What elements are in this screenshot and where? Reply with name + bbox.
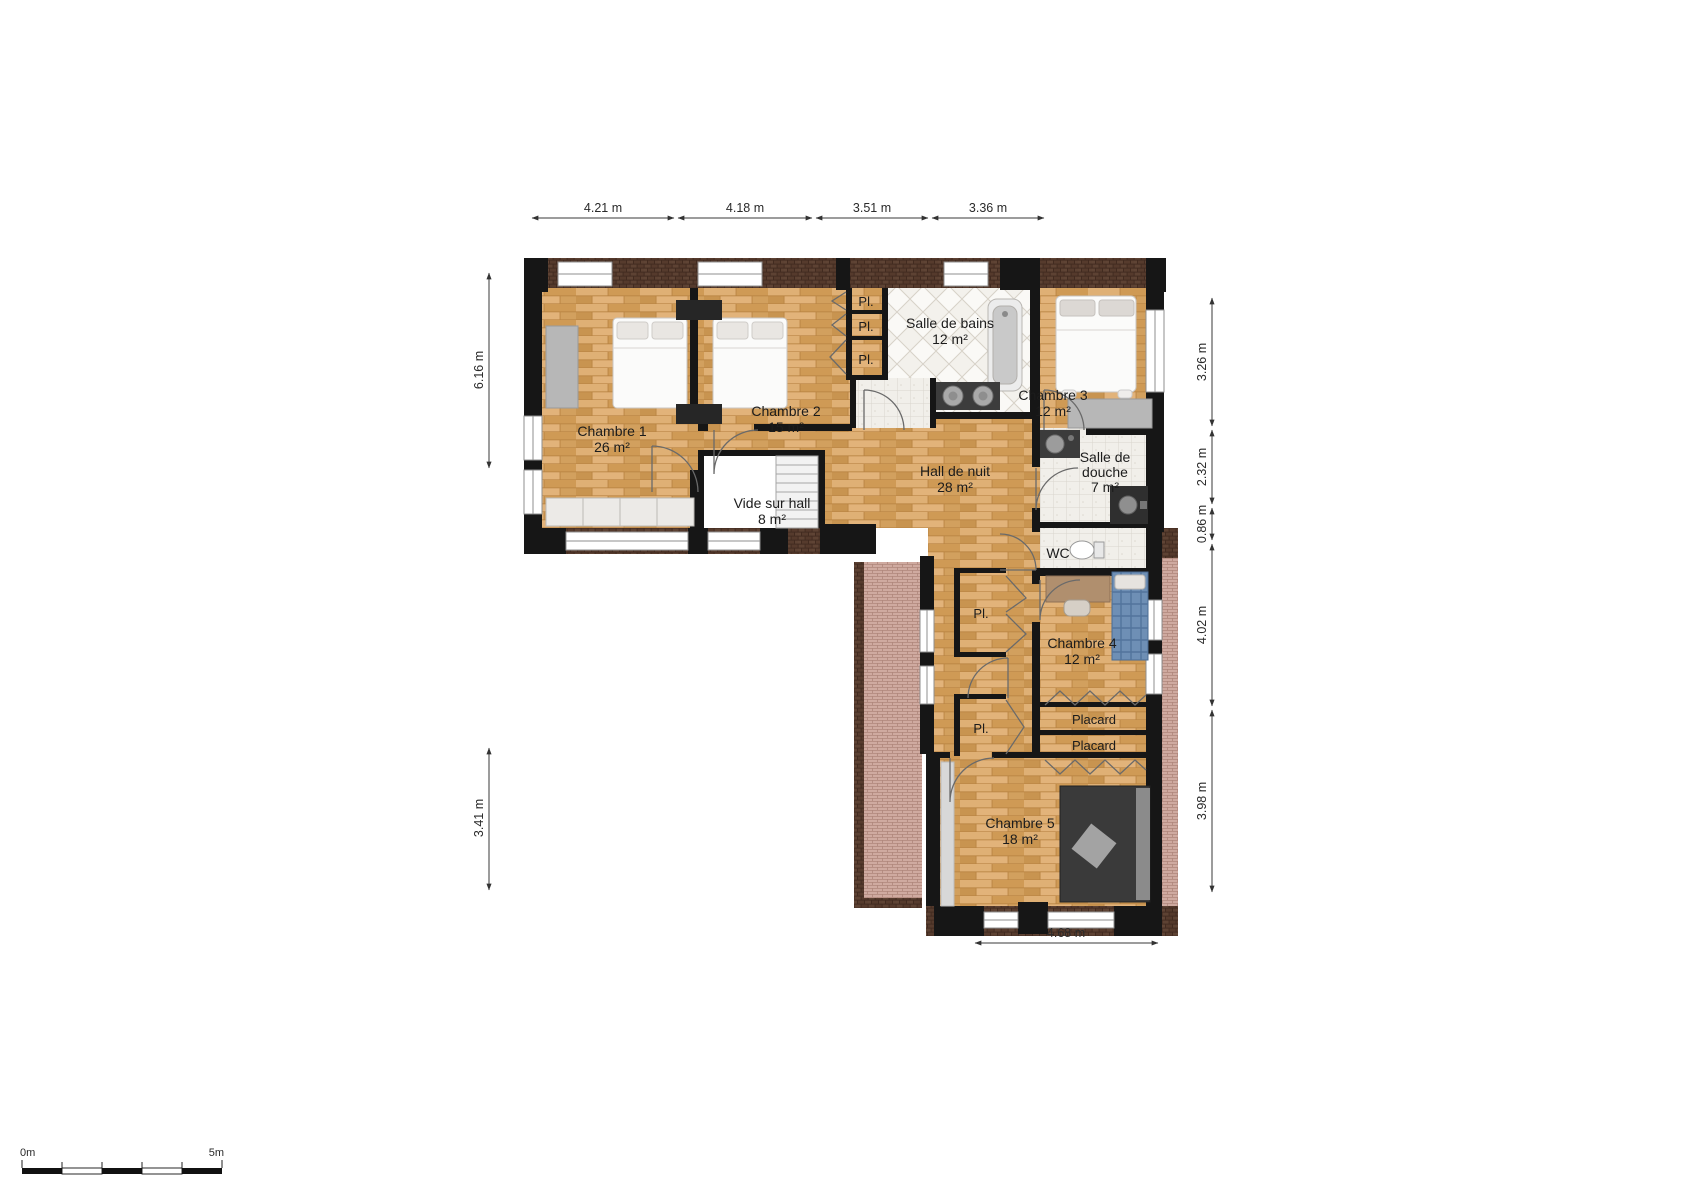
wall-placard-div bbox=[1036, 730, 1148, 735]
room-label-chambre5: Chambre 5 bbox=[985, 815, 1054, 831]
double-sink-icon bbox=[936, 382, 1000, 410]
toilet-icon bbox=[1070, 541, 1104, 559]
wall-ch2-hall-a bbox=[698, 424, 708, 431]
wall-seg bbox=[1018, 902, 1048, 934]
roof-hatch-left-bottom bbox=[854, 898, 922, 908]
wall-strip-icon bbox=[941, 762, 954, 906]
closet-label-pl: Pl. bbox=[858, 294, 873, 309]
wall-j1 bbox=[1032, 428, 1040, 435]
roof-hatch-right bbox=[1162, 528, 1178, 908]
dim-label-right-5: 3.98 m bbox=[1195, 782, 1209, 820]
wardrobe-icon bbox=[546, 326, 578, 408]
wall-placard-left bbox=[1032, 702, 1040, 756]
closet-label-placard: Placard bbox=[1072, 738, 1116, 753]
room-label-chambre1: Chambre 1 bbox=[577, 423, 646, 439]
dim-label-right-4: 4.02 m bbox=[1195, 606, 1209, 644]
wall-void-left bbox=[698, 450, 704, 528]
dim-label-left-1: 6.16 m bbox=[472, 351, 486, 389]
dim-label-right-2: 2.32 m bbox=[1195, 448, 1209, 486]
wall-pl-right bbox=[882, 288, 888, 380]
dim-label-bottom-1: 4.68 m bbox=[1047, 926, 1085, 940]
room-label-salle-de-bains: Salle de bains bbox=[906, 315, 994, 331]
wall-corr-b bbox=[1032, 622, 1040, 708]
wall-plw2-top bbox=[954, 694, 1006, 699]
west-wall-mid bbox=[524, 460, 542, 470]
floor-plan-page: Chambre 1 26 m² Chambre 2 15 m² Salle de… bbox=[0, 0, 1696, 1200]
wall-strip-left bbox=[850, 378, 856, 428]
dim-label-top-3: 3.51 m bbox=[853, 201, 891, 215]
wall-void-right bbox=[818, 450, 825, 528]
wall-corner-nw bbox=[524, 258, 548, 292]
room-label-salle-de-douche-1: Salle de bbox=[1080, 449, 1131, 465]
wall-seg bbox=[524, 528, 566, 554]
scale-seg bbox=[102, 1168, 142, 1174]
room-area-salle-de-douche: 7 m² bbox=[1091, 479, 1119, 495]
dim-label-right-3: 0.86 m bbox=[1195, 505, 1209, 543]
window bbox=[1146, 310, 1164, 392]
wall-pl-left bbox=[846, 288, 852, 380]
wall-seg bbox=[760, 528, 788, 554]
roof-hatch-right-cap bbox=[1162, 528, 1178, 558]
west-wall-upper bbox=[524, 288, 542, 416]
roof-hatch-left-edge bbox=[854, 562, 864, 908]
closet-label-placard: Placard bbox=[1072, 712, 1116, 727]
room-area-chambre2: 15 m² bbox=[768, 419, 804, 435]
room-label-hall-de-nuit: Hall de nuit bbox=[920, 463, 990, 479]
dim-label-right-1: 3.26 m bbox=[1195, 343, 1209, 381]
room-label-chambre4: Chambre 4 bbox=[1047, 635, 1116, 651]
closet-label-pl: Pl. bbox=[858, 352, 873, 367]
closet-label-pl: Pl. bbox=[858, 319, 873, 334]
sink-icon bbox=[1040, 430, 1080, 458]
dim-label-left-2: 3.41 m bbox=[472, 799, 486, 837]
wall-plw1-bottom bbox=[954, 652, 1006, 657]
east-wall-upper bbox=[1146, 288, 1164, 310]
wall-void-top bbox=[698, 450, 820, 456]
wall-hall-sdd-a bbox=[1032, 412, 1040, 467]
dim-label-top-2: 4.18 m bbox=[726, 201, 764, 215]
wing-west-wall-1 bbox=[920, 556, 934, 610]
nightstand-icon bbox=[676, 404, 722, 424]
room-area-chambre3: 12 m² bbox=[1035, 403, 1071, 419]
wall-seg bbox=[934, 906, 984, 936]
bathtub-icon bbox=[988, 299, 1022, 391]
wall-pl-div1 bbox=[846, 310, 888, 314]
closet-label-pl: Pl. bbox=[973, 606, 988, 621]
room-area-chambre5: 18 m² bbox=[1002, 831, 1038, 847]
window bbox=[984, 912, 1018, 928]
bed-icon bbox=[1056, 296, 1136, 398]
room-label-salle-de-douche-2: douche bbox=[1082, 464, 1128, 480]
wall-plw1-top bbox=[954, 568, 1006, 573]
wall-ch5-top-b bbox=[992, 752, 1148, 758]
bed-icon bbox=[1112, 572, 1148, 660]
wall-seg bbox=[820, 524, 876, 554]
scale-ticks bbox=[22, 1160, 222, 1168]
window bbox=[944, 262, 988, 286]
room-area-hall-de-nuit: 28 m² bbox=[937, 479, 973, 495]
wall-ch3-bottom bbox=[1086, 428, 1148, 435]
window bbox=[558, 262, 612, 286]
window bbox=[524, 470, 542, 514]
room-area-chambre4: 12 m² bbox=[1064, 651, 1100, 667]
window bbox=[708, 532, 760, 550]
west-wall-lower bbox=[524, 514, 542, 530]
wall-strip-right bbox=[930, 378, 936, 428]
scale-label-end: 5m bbox=[209, 1147, 224, 1159]
wall-placard-top bbox=[1032, 702, 1148, 707]
scale-bar: 0m 5m bbox=[20, 1147, 224, 1174]
dim-label-top-4: 3.36 m bbox=[969, 201, 1007, 215]
window bbox=[920, 610, 934, 652]
scale-seg bbox=[182, 1168, 222, 1174]
bed-icon bbox=[1060, 786, 1150, 902]
wall-ch5-top-a bbox=[934, 752, 950, 758]
scale-label-start: 0m bbox=[20, 1147, 35, 1159]
wing-west-wall-3 bbox=[920, 704, 934, 754]
wall-corr-a bbox=[1032, 570, 1040, 584]
window bbox=[698, 262, 762, 286]
window bbox=[920, 666, 934, 704]
room-label-vide-sur-hall: Vide sur hall bbox=[734, 495, 811, 511]
dim-label-top-1: 4.21 m bbox=[584, 201, 622, 215]
wall-corner-ne bbox=[1146, 258, 1166, 292]
room-label-chambre3: Chambre 3 bbox=[1018, 387, 1087, 403]
wall-seg bbox=[1114, 906, 1162, 936]
roof-hatch-left bbox=[854, 562, 922, 908]
room-label-wc: WC bbox=[1046, 545, 1069, 561]
room-area-salle-de-bains: 12 m² bbox=[932, 331, 968, 347]
wall-seg bbox=[836, 258, 850, 290]
nightstand-icon bbox=[676, 300, 722, 320]
wall-plw2-left bbox=[954, 694, 960, 756]
wing-west-wall-2 bbox=[920, 652, 934, 666]
bed-icon bbox=[613, 318, 687, 408]
wing-west-wall-4 bbox=[926, 752, 940, 912]
room-area-chambre1: 26 m² bbox=[594, 439, 630, 455]
room-label-chambre2: Chambre 2 bbox=[751, 403, 820, 419]
closet-row-icon bbox=[546, 498, 694, 526]
wall-seg bbox=[1000, 258, 1040, 290]
wall-hall-sdd-b bbox=[1032, 508, 1040, 532]
window bbox=[524, 416, 542, 460]
wall-seg bbox=[688, 528, 708, 554]
wall-sdb-hall bbox=[936, 412, 1036, 419]
wall-pl-div2 bbox=[846, 336, 888, 340]
scale-seg bbox=[142, 1168, 182, 1174]
bed-icon bbox=[713, 318, 787, 408]
floor-plan-canvas: Chambre 1 26 m² Chambre 2 15 m² Salle de… bbox=[0, 0, 1696, 1200]
window bbox=[566, 532, 688, 550]
scale-seg bbox=[62, 1168, 102, 1174]
scale-seg bbox=[22, 1168, 62, 1174]
wall-plw1-left bbox=[954, 568, 960, 656]
room-area-vide-sur-hall: 8 m² bbox=[758, 511, 786, 527]
closet-label-pl: Pl. bbox=[973, 721, 988, 736]
